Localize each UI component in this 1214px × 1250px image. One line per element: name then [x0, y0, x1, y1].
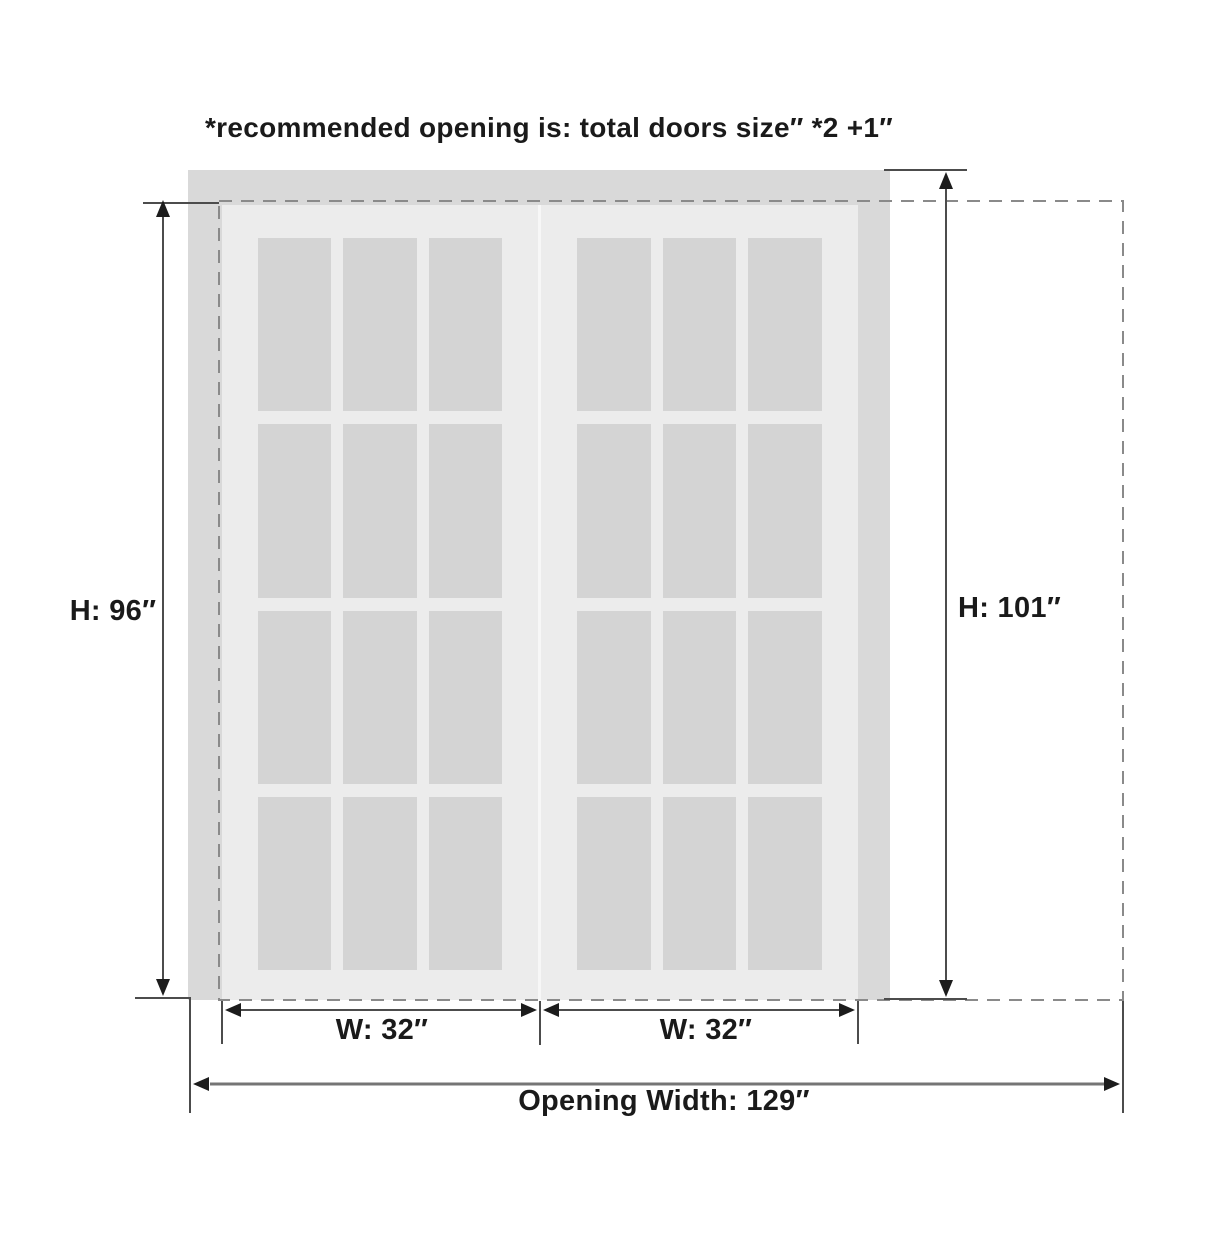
arrow-left-icon	[193, 1077, 209, 1091]
arrow-left-icon	[543, 1003, 559, 1017]
arrow-down-icon	[156, 979, 170, 996]
opening-height-dimension	[884, 170, 967, 999]
arrow-left-icon	[225, 1003, 241, 1017]
door-dimension-diagram: *recommended opening is: total doors siz…	[0, 0, 1214, 1250]
arrow-down-icon	[939, 980, 953, 997]
arrow-right-icon	[1104, 1077, 1120, 1091]
opening-width-label: Opening Width: 129″	[414, 1086, 914, 1118]
left-door-width-label: W: 32″	[262, 1015, 502, 1047]
opening-height-label: H: 101″	[958, 593, 1061, 625]
arrow-up-icon	[939, 172, 953, 189]
arrow-right-icon	[839, 1003, 855, 1017]
right-door-width-label: W: 32″	[586, 1015, 826, 1047]
door-height-label: H: 96″	[43, 596, 183, 628]
arrow-right-icon	[521, 1003, 537, 1017]
